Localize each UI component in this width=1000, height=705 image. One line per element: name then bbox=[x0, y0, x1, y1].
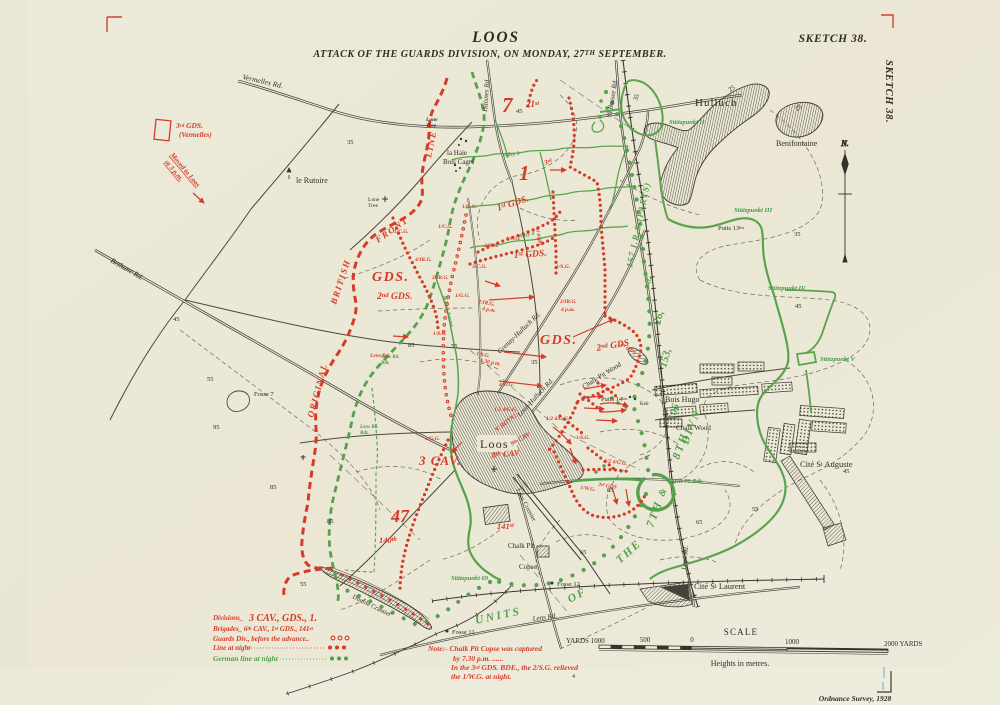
svg-text:Stützpunkt 69: Stützpunkt 69 bbox=[451, 575, 489, 582]
svg-text:the 1/W.G. at night.: the 1/W.G. at night. bbox=[451, 672, 511, 681]
svg-text:Stützpunkt II: Stützpunkt II bbox=[669, 119, 705, 126]
svg-text:3/C.G.: 3/C.G. bbox=[471, 264, 487, 270]
svg-text:85: 85 bbox=[408, 342, 415, 349]
svg-text:1000: 1000 bbox=[785, 638, 800, 646]
svg-text:65: 65 bbox=[580, 549, 587, 556]
svg-text:35: 35 bbox=[531, 359, 538, 366]
svg-text:7: 7 bbox=[502, 93, 514, 117]
svg-text:1/G.G.: 1/G.G. bbox=[425, 436, 440, 442]
svg-text:Hulluch: Hulluch bbox=[695, 97, 737, 109]
svg-text:95: 95 bbox=[213, 424, 220, 431]
svg-text:45: 45 bbox=[795, 303, 802, 310]
svg-text:Loos: Loos bbox=[480, 437, 509, 451]
svg-text:4/G.G.: 4/G.G. bbox=[498, 382, 514, 388]
svg-text:In the 3rd GDS. BDE., the 2/S.: In the 3rd GDS. BDE., the 2/S.G. relieve… bbox=[450, 663, 578, 672]
svg-text:45: 45 bbox=[173, 316, 180, 323]
svg-text:1/8.G.: 1/8.G. bbox=[433, 331, 447, 337]
svg-text:Ordnance Survey, 1928: Ordnance Survey, 1928 bbox=[819, 694, 892, 703]
svg-text:Brigades_ 6th CAV., 1st GDS.,: Brigades_ 6th CAV., 1st GDS., 141st bbox=[212, 625, 313, 633]
svg-text:1/2 4/G.G.: 1/2 4/G.G. bbox=[494, 407, 517, 413]
svg-text:Rdt.: Rdt. bbox=[381, 361, 389, 366]
svg-text:500: 500 bbox=[640, 636, 651, 644]
svg-text:1/G.G.: 1/G.G. bbox=[462, 204, 477, 210]
svg-text:la Haie: la Haie bbox=[447, 149, 467, 157]
svg-text:Note:- Chalk Pit Copse was cap: Note:- Chalk Pit Copse was captured bbox=[427, 644, 542, 653]
svg-text:2/C.G.: 2/C.G. bbox=[483, 243, 499, 249]
svg-text:Fosse 11: Fosse 11 bbox=[452, 629, 475, 636]
svg-text:Kelr: Kelr bbox=[640, 402, 649, 407]
svg-text:N.: N. bbox=[840, 139, 848, 148]
svg-text:SKETCH 38.: SKETCH 38. bbox=[883, 60, 894, 123]
svg-text:SCALE: SCALE bbox=[724, 627, 759, 637]
svg-text:55: 55 bbox=[451, 343, 458, 350]
svg-text:55: 55 bbox=[752, 506, 759, 513]
svg-text:YARDS 1000: YARDS 1000 bbox=[566, 637, 605, 645]
svg-text:Lens Rd.: Lens Rd. bbox=[359, 425, 378, 430]
svg-text:3 CAV., GDS., 1.: 3 CAV., GDS., 1. bbox=[248, 613, 317, 624]
svg-text:Line at night: Line at night bbox=[212, 644, 251, 652]
svg-text:35: 35 bbox=[347, 139, 354, 146]
svg-text:ATTACK OF THE GUARDS DIVISION,: ATTACK OF THE GUARDS DIVISION, ON MONDAY… bbox=[312, 49, 666, 60]
svg-text:4 p.m.: 4 p.m. bbox=[560, 307, 575, 313]
svg-text:85: 85 bbox=[270, 484, 277, 491]
svg-text:1/C.G.: 1/C.G. bbox=[438, 224, 453, 230]
svg-text:85: 85 bbox=[327, 518, 334, 525]
svg-text:1/C.G.: 1/C.G. bbox=[506, 236, 521, 242]
svg-text:47: 47 bbox=[390, 506, 410, 526]
svg-text:Bois Hugo: Bois Hugo bbox=[665, 395, 699, 404]
svg-text:Cité St Laurent: Cité St Laurent bbox=[694, 581, 746, 591]
svg-text:55: 55 bbox=[207, 376, 214, 383]
svg-text:2000 YARDS: 2000 YARDS bbox=[884, 640, 923, 648]
svg-text:1/6.G.: 1/6.G. bbox=[576, 435, 590, 441]
svg-text:2nd GDS.: 2nd GDS. bbox=[376, 292, 412, 302]
svg-text:45: 45 bbox=[843, 468, 850, 475]
svg-text:(Vermelles): (Vermelles) bbox=[179, 131, 212, 139]
svg-text:Guards Div., before the advanc: Guards Div., before the advance.. bbox=[213, 635, 309, 643]
svg-text:Stützpunkt V: Stützpunkt V bbox=[820, 356, 856, 363]
svg-text:3rd GDS.: 3rd GDS. bbox=[175, 121, 203, 130]
svg-text:3 CAV.: 3 CAV. bbox=[418, 453, 461, 468]
svg-text:1/C.G.: 1/C.G. bbox=[394, 229, 409, 235]
svg-text:le Rutoire: le Rutoire bbox=[296, 176, 328, 185]
svg-text:Chalk Wood: Chalk Wood bbox=[676, 424, 711, 432]
svg-text:Divisions_: Divisions_ bbox=[212, 614, 244, 622]
svg-text:Stützpunkt III: Stützpunkt III bbox=[734, 207, 773, 214]
svg-text:2/IR.G.: 2/IR.G. bbox=[559, 299, 577, 305]
svg-text:Rdt.: Rdt. bbox=[360, 431, 368, 436]
svg-text:0: 0 bbox=[690, 636, 694, 644]
svg-text:35: 35 bbox=[794, 231, 801, 238]
svg-text:4/IR.G.: 4/IR.G. bbox=[414, 257, 432, 263]
svg-text:Stützpunkt IV: Stützpunkt IV bbox=[768, 285, 806, 292]
svg-text:45: 45 bbox=[516, 108, 523, 115]
svg-text:Hill 70 Rdt.: Hill 70 Rdt. bbox=[671, 478, 704, 485]
svg-text:SKETCH 38.: SKETCH 38. bbox=[799, 33, 868, 45]
svg-text:Heights in metres.: Heights in metres. bbox=[711, 659, 769, 668]
svg-text:Benifontaine: Benifontaine bbox=[776, 139, 818, 148]
svg-text:55: 55 bbox=[300, 581, 307, 588]
svg-text:Chalk Pit: Chalk Pit bbox=[508, 542, 534, 550]
svg-text:85: 85 bbox=[607, 487, 614, 494]
svg-text:1/2 4/G.G.: 1/2 4/G.G. bbox=[546, 416, 569, 422]
svg-text:1: 1 bbox=[519, 161, 530, 185]
svg-text:Tree: Tree bbox=[426, 123, 437, 129]
svg-text:1/G.G.: 1/G.G. bbox=[455, 293, 470, 299]
svg-text:Copse: Copse bbox=[519, 563, 537, 571]
svg-text:Tree: Tree bbox=[368, 203, 378, 209]
svg-text:LOOS: LOOS bbox=[471, 29, 520, 46]
svg-text:GDS.: GDS. bbox=[540, 333, 578, 348]
svg-text:1/S.G.: 1/S.G. bbox=[556, 264, 570, 270]
svg-text:Bois Cagré: Bois Cagré bbox=[443, 158, 474, 166]
svg-text:Lens Rd.: Lens Rd. bbox=[369, 353, 390, 359]
svg-text:GDS.: GDS. bbox=[372, 270, 410, 285]
svg-text:by 7.30 p.m. ......: by 7.30 p.m. ...... bbox=[453, 654, 504, 663]
svg-text:Fosse 7: Fosse 7 bbox=[254, 391, 274, 398]
svg-text:2/IR.G.: 2/IR.G. bbox=[431, 275, 449, 281]
svg-text:Fosse 12: Fosse 12 bbox=[557, 581, 580, 588]
svg-text:65: 65 bbox=[696, 519, 703, 526]
svg-text:4: 4 bbox=[572, 674, 575, 680]
svg-text:German line at night: German line at night bbox=[213, 654, 279, 663]
